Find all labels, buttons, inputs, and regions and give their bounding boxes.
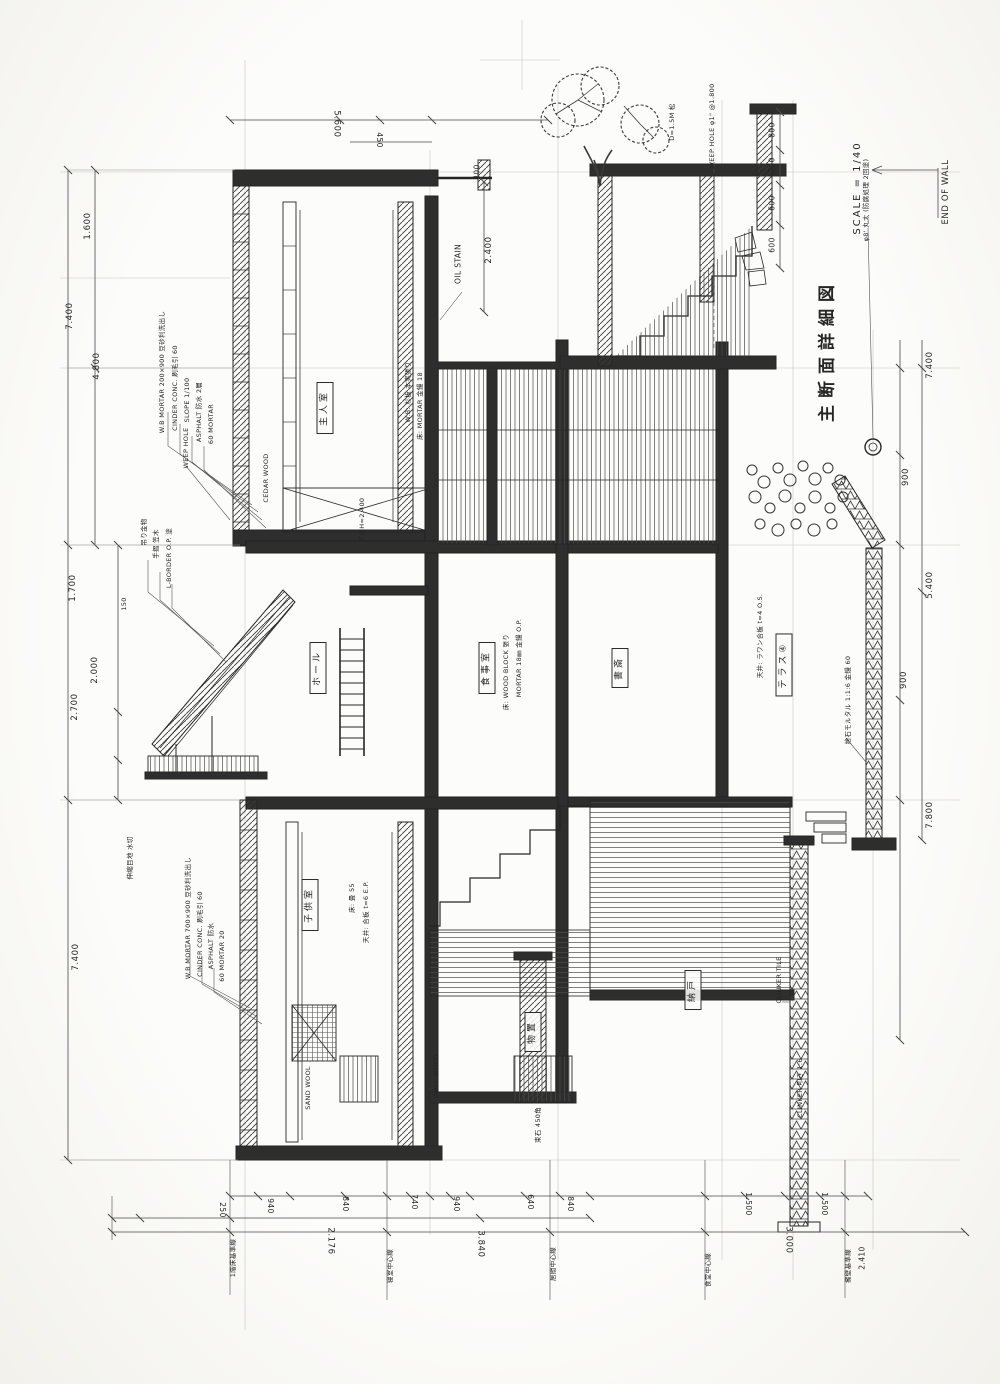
drawing-sheet: 主断面詳細図 SCALE = 1/40 END OF WALL 主人室 ホール …: [0, 0, 1000, 1384]
dim-top-4: 2.400: [485, 236, 494, 263]
garden-tower: [590, 104, 796, 366]
annotation-mortar18: MORTAR 18㎜ 金鏝 O.P.: [516, 619, 523, 697]
grid-label-4: 食堂中心線: [705, 1253, 712, 1287]
annotation-log-post: φ8' 丸太 (防腐処理 2回塗): [863, 159, 870, 242]
dim-top-2: 450: [375, 132, 383, 148]
room-label-hall: ホール: [310, 642, 327, 694]
dim-bs-5: 940: [452, 1196, 460, 1212]
annotation-wall-wood: WALL WOOD: [433, 1054, 440, 1098]
annotation-mortar-1: W.B MORTAR 200×900 豆砂利洗出し: [159, 311, 166, 433]
dim-right-4: 900: [900, 671, 909, 689]
annotation-ceiling-height: 天井H=2.400: [359, 498, 366, 543]
dim-right-2: 900: [902, 468, 911, 486]
lower-deck: [430, 800, 794, 1102]
dim-left-7: 7.400: [72, 943, 81, 970]
room-label-store: 納戸: [685, 970, 702, 1010]
annotation-rubble-mortar: 捨石モルタル 1:1:6 金鏝 60: [845, 656, 852, 745]
annotation-tree-size: D=1.5M 松: [669, 103, 676, 140]
annotation-lborder: L-BORDER O.P. 塗: [166, 528, 173, 588]
annotation-mortar60: 60 MORTAR: [208, 404, 215, 444]
pebble-garden: [747, 461, 848, 536]
annotation-sand-wool: SAND WOOL: [305, 1066, 312, 1110]
annotation-cedar-wood: CEDAR WOOD: [263, 453, 270, 502]
dim-tr-3: 600: [768, 195, 776, 211]
annotation-ceiling-lauan: 天井: ラワン合板 t=4 O.S.: [757, 594, 764, 679]
room-label-terrace: テラス④: [776, 634, 793, 697]
annotation-weep-hole-2: WEEP HOLE φ1" @1.800: [709, 83, 716, 168]
annotation-cinder-2: CINDER CONC. 刷毛引 60: [197, 891, 204, 977]
dim-right-3: 5.400: [926, 571, 935, 598]
skylight-slope: [145, 590, 295, 779]
annotation-mortar20: 60 MORTAR 20: [219, 930, 226, 981]
dim-bs-9: 1.500: [820, 1192, 828, 1215]
annotation-slope: SLOPE 1/100: [184, 378, 191, 423]
room-label-child: 子供室: [302, 879, 319, 931]
dim-bs-8: 1.500: [744, 1192, 752, 1215]
grid-label-2: 寝室中心線: [387, 1249, 394, 1283]
annotation-footing-stone: 束石 450角: [535, 1107, 542, 1143]
annotation-tatami: 床: 畳 55: [349, 883, 356, 913]
dim-left-8: 150: [121, 597, 128, 610]
dim-left-6: 2.700: [71, 693, 80, 720]
annotation-clinker-base: CLINKER 叩き 1:6: [797, 1058, 804, 1118]
annotation-hanger: 吊り金物: [141, 518, 148, 545]
annotation-cinder-1: CINDER CONC. 刷毛引 60: [172, 345, 179, 431]
annotation-handrail: 手摺 笠木: [153, 529, 160, 559]
dim-right-5: 7.800: [926, 801, 935, 828]
dim-bs-1: 250: [218, 1202, 226, 1218]
construction-lines: [60, 20, 960, 1330]
annotation-cedar-board: W.B: 杉板 本実張り: [405, 361, 412, 422]
dim-left-1: 1.600: [84, 212, 93, 239]
dim-right-1: 7.400: [926, 351, 935, 378]
dim-left-5: 2.000: [91, 656, 100, 683]
annotation-floor-mortar: 床: MORTAR 金鏝 18: [417, 372, 424, 440]
room-label-master: 主人室: [317, 382, 334, 434]
room-label-dining: 食事室: [479, 642, 496, 694]
grid-label-3: 居間中心線: [550, 1247, 557, 1281]
annotation-joint: 伸縮目地 水切: [127, 836, 134, 879]
dim-bs-7: 840: [566, 1196, 574, 1212]
room-label-study: 書斎: [612, 648, 629, 688]
annotation-mortar-2: W.B MORTAR 700×900 豆砂利洗出し: [185, 857, 192, 979]
stair-ladder: [340, 628, 364, 756]
annotation-weep-hole-1: WEEP HOLE: [183, 427, 190, 468]
annotation-ceiling-ply: 天井: 合板 t=6 E.P.: [363, 881, 370, 943]
dim-top-3: 400: [473, 164, 481, 180]
dim-left-4: 1.700: [69, 574, 78, 601]
dim-left-2: 7.400: [66, 302, 75, 329]
annotation-asphalt-2: ASPHALT 防水: [208, 923, 215, 970]
dim-bs-3: 840: [341, 1196, 349, 1212]
grid-label-5: 擁壁基準線: [845, 1249, 852, 1283]
dim-tr-4: 600: [768, 237, 776, 253]
grid-label-1: 1階床基準線: [230, 1239, 237, 1277]
annotation-asphalt-1: ASPHALT 防水 2層: [196, 382, 203, 442]
dim-bl-1: 2.176: [326, 1227, 335, 1254]
end-of-wall-label: END OF WALL: [942, 159, 951, 224]
annotation-oil-stain: OIL STAIN: [454, 244, 462, 284]
annotation-wood-block: 床: WOOD BLOCK 張り: [503, 634, 510, 710]
room-label-cellar: 物置: [525, 1012, 542, 1052]
dim-tr-1: 800: [768, 122, 776, 138]
dim-bl-3: 3.000: [784, 1226, 793, 1253]
dim-bl-4: 2.410: [858, 1246, 866, 1269]
dim-bs-6: 640: [526, 1194, 534, 1210]
annotation-clinker-tile: CLINKER TILE: [776, 956, 783, 1003]
dim-tr-2: 200: [768, 157, 776, 173]
dim-left-3: 4.800: [93, 352, 102, 379]
drawing-title: 主断面詳細図: [820, 278, 837, 422]
dim-bs-4: 740: [410, 1194, 418, 1210]
dim-top-1: 5.600: [332, 110, 341, 137]
dim-bs-2: 940: [266, 1198, 274, 1214]
dim-bl-2: 3.840: [476, 1230, 485, 1257]
